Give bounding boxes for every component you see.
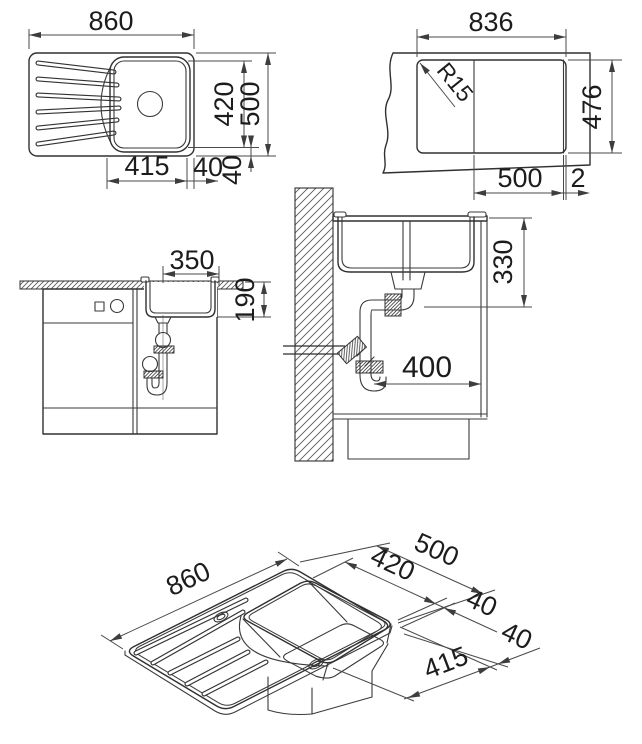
bowl-section-side: [338, 217, 474, 272]
dim-iso-bowl-depth: 420: [366, 541, 420, 587]
dim-top-overall-depth: 500: [235, 81, 265, 126]
cutout-view: R15 836 476 500 2: [383, 7, 622, 200]
countertop-outline: [383, 53, 590, 173]
dim-iso-overall-depth: 500: [410, 527, 463, 573]
dim-cutout-radius: R15: [432, 57, 479, 106]
isometric-view: 860 500 420 40 40: [101, 527, 540, 715]
trap-plumbing: [143, 315, 175, 400]
dim-cutout-width: 836: [468, 7, 513, 37]
iso-dimensions: 860 500 420 40 40: [101, 527, 540, 701]
bowl-transition-curve: [101, 68, 110, 141]
dim-iso-bowl-width: 415: [419, 641, 472, 685]
sink-technical-drawing-page: 860 420 500 415 40 40: [0, 0, 642, 744]
bowl-mask: [144, 282, 217, 317]
dim-top-bottom-gap: 40: [217, 155, 247, 185]
countertop-section: [333, 216, 487, 221]
dim-section-outlet-offset: 400: [402, 351, 452, 384]
handle-circle: [111, 300, 124, 313]
iso-bowl-opening: [244, 581, 390, 663]
bowl-outer-rim: [110, 57, 190, 152]
dim-iso-rim-gap-a: 40: [462, 583, 502, 623]
plinth: [348, 419, 469, 459]
dim-cutout-depth: 476: [577, 84, 607, 129]
wall-hatched: [295, 188, 333, 461]
drain-hole: [138, 92, 163, 117]
dim-front-bowl-height: 190: [230, 277, 260, 322]
dim-cutout-bowl-section: 500: [497, 163, 542, 193]
section-view: 330 400: [283, 188, 532, 461]
dim-cutout-overhang: 2: [570, 163, 585, 193]
dim-section-outlet-drop: 330: [488, 239, 518, 284]
sink-dimension-diagram: 860 420 500 415 40 40: [0, 0, 642, 744]
dim-iso-overall-width: 860: [161, 556, 215, 602]
top-view: 860 420 500 415 40 40: [29, 6, 276, 189]
front-view: 350 190: [20, 245, 271, 434]
dim-top-bowl-width: 415: [124, 151, 169, 181]
dim-top-overall-width: 860: [88, 6, 133, 36]
dim-iso-rim-gap-b: 40: [497, 616, 537, 656]
dim-front-drain-to-back: 350: [169, 245, 214, 275]
bowl-inner-rim: [114, 61, 186, 148]
handle-square: [95, 302, 104, 311]
